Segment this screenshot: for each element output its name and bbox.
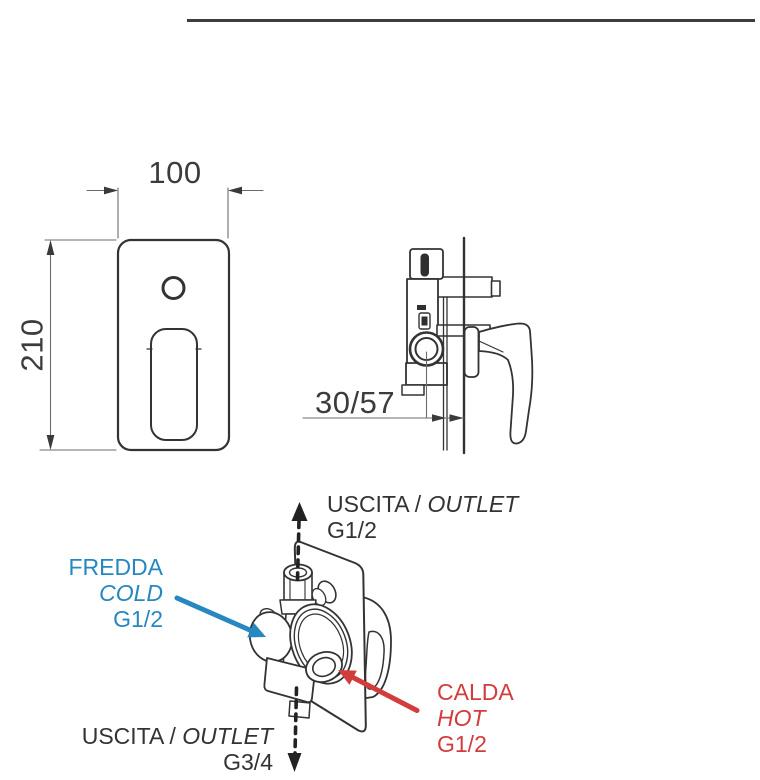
hot-thread: G1/2 — [437, 731, 514, 757]
lower-foot — [402, 385, 424, 395]
cold-inlet-label: FREDDA COLD G1/2 — [60, 554, 163, 632]
outlet-bottom-line1: USCITA / OUTLET — [80, 723, 273, 749]
outlet-bottom-label: USCITA / OUTLET G3/4 — [80, 723, 273, 775]
lever-slot — [151, 329, 197, 440]
dimension-arrowhead — [104, 187, 118, 195]
cold-label-it: FREDDA — [60, 554, 163, 580]
dimension-arrowhead — [450, 414, 464, 422]
depth-dimension-label: 30/57 — [315, 385, 395, 421]
outlet-top-thread: G1/2 — [327, 517, 518, 543]
outlet-top-label: USCITA / OUTLET G1/2 — [327, 491, 518, 543]
cold-label-en: COLD — [60, 580, 163, 606]
outlet-top-line1: USCITA / OUTLET — [327, 491, 518, 517]
front-width-dimension — [87, 187, 263, 238]
diverter-button — [163, 278, 184, 299]
hot-inlet-label: CALDA HOT G1/2 — [437, 679, 514, 757]
hot-label-it: CALDA — [437, 679, 514, 705]
outlet-direction-arrow-up-icon — [292, 502, 308, 521]
cartridge-slot — [421, 254, 430, 277]
outlet-pipe-cap — [492, 281, 501, 296]
dimension-arrowhead — [47, 435, 55, 450]
dimension-arrowhead — [47, 240, 55, 255]
cold-thread: G1/2 — [60, 606, 163, 632]
handle-lever-side — [479, 324, 532, 444]
handle-escutcheon — [465, 327, 479, 377]
outlet-direction-arrow-down-icon — [288, 753, 302, 772]
technical-drawing-sheet: 100 210 30/57 USCITA / OUTLET G1/2 FREDD… — [0, 0, 760, 780]
bottom-stub — [289, 701, 310, 718]
dimension-arrowhead — [228, 187, 242, 195]
width-dimension-label: 100 — [130, 155, 220, 191]
cold-flow-arrow-icon — [177, 598, 266, 637]
height-dimension-label: 210 — [0, 312, 88, 378]
outlet-bottom-thread: G3/4 — [80, 749, 273, 775]
hot-label-en: HOT — [437, 705, 514, 731]
